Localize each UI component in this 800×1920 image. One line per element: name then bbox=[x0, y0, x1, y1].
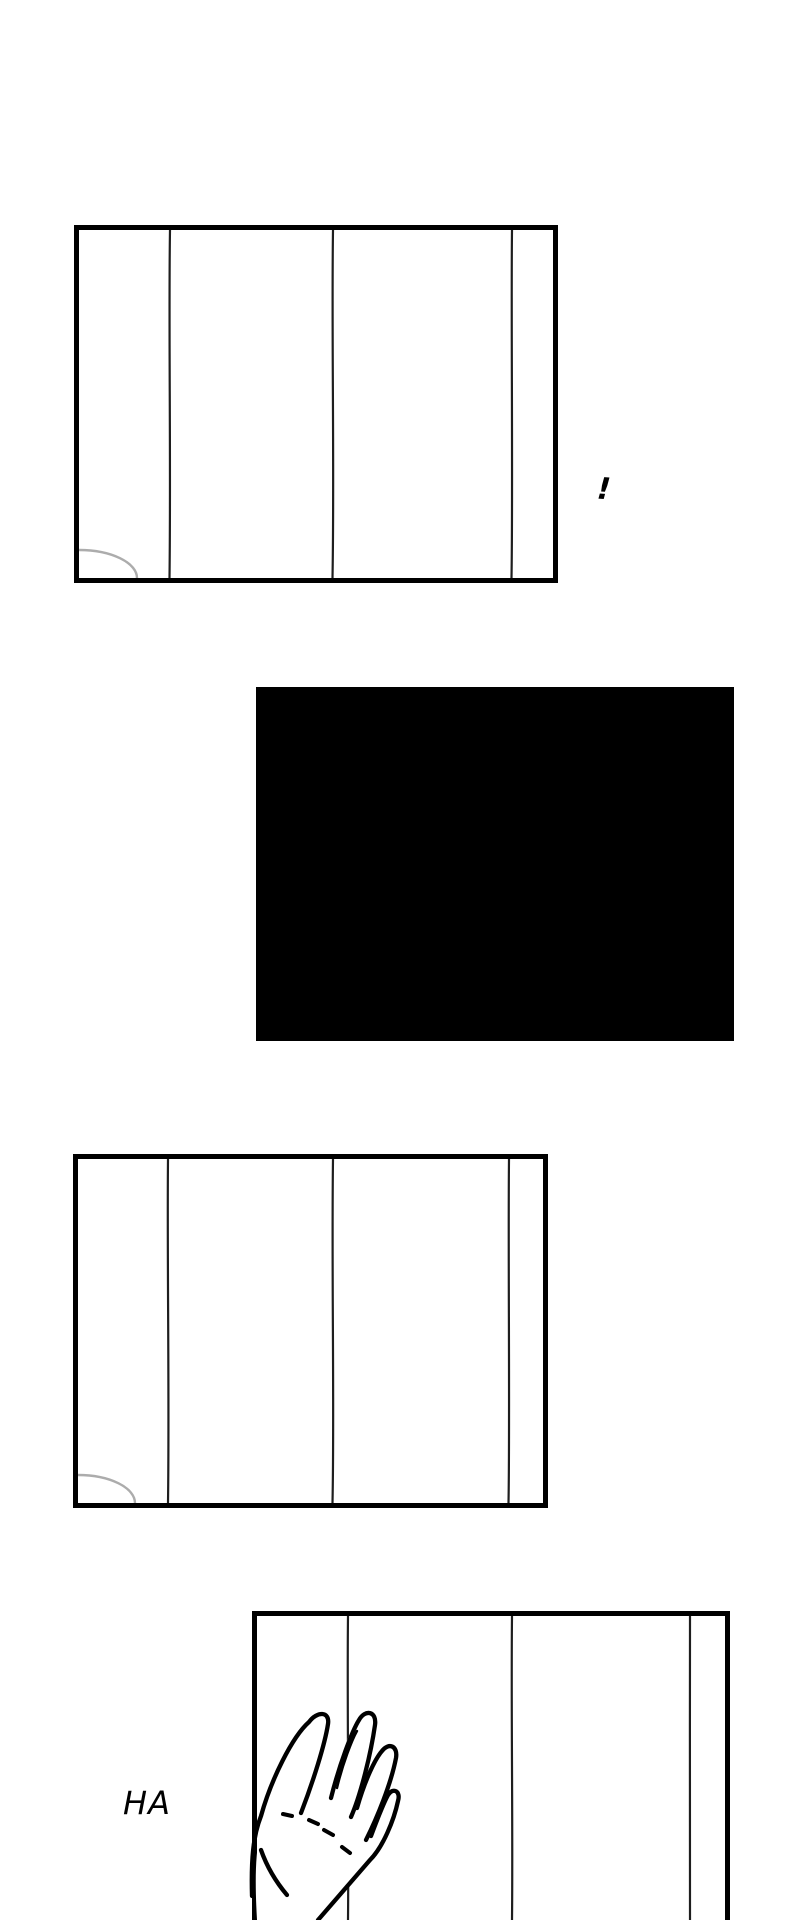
wall-seam-line bbox=[333, 1159, 334, 1503]
corner-arc bbox=[79, 550, 137, 578]
wall-seam-line bbox=[512, 230, 513, 578]
comic-panel-2-blackout bbox=[256, 687, 734, 1041]
hand-drawing bbox=[228, 1688, 412, 1920]
wall-seam-line bbox=[333, 230, 334, 578]
wall-seam-line bbox=[170, 230, 171, 578]
sfx-ha: HA bbox=[123, 1787, 171, 1819]
sfx-exclamation: ! bbox=[596, 475, 612, 506]
comic-panel-3 bbox=[73, 1154, 548, 1508]
wall-seam-line bbox=[168, 1159, 169, 1503]
wall-seams-art-1 bbox=[79, 230, 553, 578]
wall-seam-line bbox=[509, 1159, 510, 1503]
corner-arc bbox=[78, 1475, 135, 1503]
palm-dash bbox=[283, 1814, 292, 1816]
comic-panel-1: ! bbox=[74, 225, 558, 583]
comic-page: ! HA bbox=[0, 0, 800, 1920]
wall-seam-line bbox=[512, 1616, 513, 1920]
wall-seams-art-3 bbox=[78, 1159, 543, 1503]
